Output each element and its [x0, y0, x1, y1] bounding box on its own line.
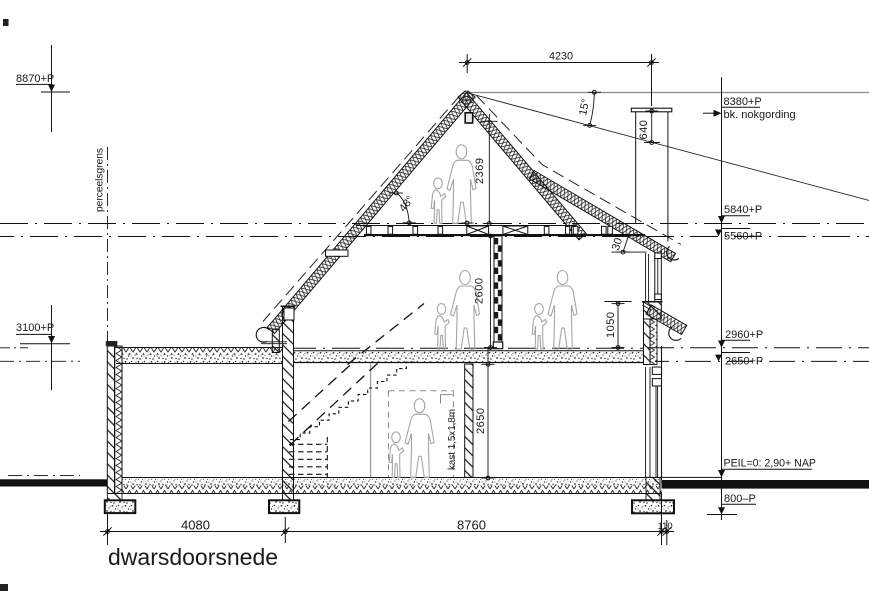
svg-text:5840+P: 5840+P — [724, 204, 762, 216]
svg-text:perceelsgrens: perceelsgrens — [95, 148, 106, 212]
svg-text:8870+P: 8870+P — [16, 73, 54, 85]
svg-text:2650: 2650 — [475, 408, 487, 434]
svg-text:5560+P: 5560+P — [724, 231, 762, 243]
svg-text:2960+P: 2960+P — [725, 329, 763, 341]
svg-text:4230: 4230 — [549, 51, 573, 63]
svg-text:1050: 1050 — [605, 312, 617, 338]
svg-text:8380+P: 8380+P — [724, 96, 762, 108]
svg-text:kast 1,5x1,8m: kast 1,5x1,8m — [447, 409, 458, 470]
svg-text:640: 640 — [638, 120, 650, 140]
svg-text:bk. nokgording: bk. nokgording — [724, 109, 796, 121]
svg-text:110: 110 — [658, 521, 673, 532]
svg-text:8760: 8760 — [457, 518, 486, 533]
svg-text:800–P: 800–P — [724, 493, 756, 505]
svg-text:PEIL=0: 2,90+ NAP: PEIL=0: 2,90+ NAP — [724, 458, 816, 470]
svg-text:2369: 2369 — [474, 158, 486, 184]
svg-text:2600: 2600 — [474, 278, 486, 304]
svg-text:4080: 4080 — [181, 518, 210, 533]
svg-text:2650+P: 2650+P — [725, 356, 763, 368]
svg-text:dwarsdoorsnede: dwarsdoorsnede — [108, 544, 278, 570]
svg-text:3100+P: 3100+P — [16, 322, 54, 334]
